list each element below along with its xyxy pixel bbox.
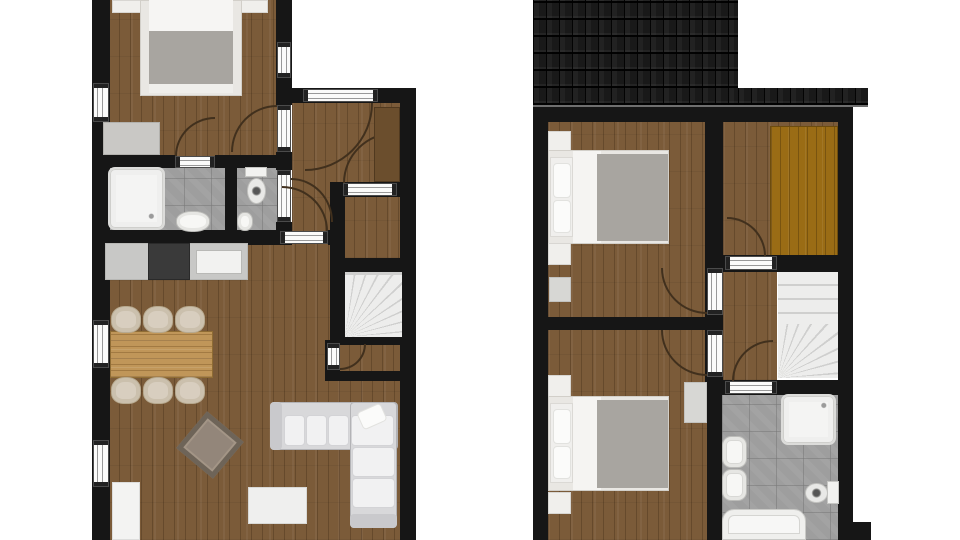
wall-upper-left (533, 107, 548, 540)
bed-pillow (553, 163, 571, 198)
window-bedroom-left (93, 83, 109, 122)
door-bedroom (277, 105, 291, 152)
kitchen-sink-basin (196, 250, 242, 274)
bed-pillow (553, 409, 571, 444)
nightstand (548, 131, 571, 152)
wall-bedroom-divider (548, 317, 707, 330)
bed-blanket (597, 154, 668, 241)
bedroom2-dresser (549, 277, 571, 302)
upper-shower-tray (781, 394, 836, 445)
kitchen-stove (148, 243, 190, 280)
sofa-cushion (352, 447, 395, 477)
sofa-armrest (270, 402, 282, 450)
door-upper-bedroom3 (707, 330, 723, 377)
wall-step-bottom-right (848, 522, 871, 540)
upper-stairs-winders (778, 324, 838, 378)
wc-sink (237, 212, 253, 231)
window-living-left (93, 440, 109, 487)
bed-blanket (149, 31, 233, 86)
tv-stand (248, 487, 307, 524)
sofa-cushion (352, 478, 395, 508)
wc-toilet-bowl (247, 178, 266, 204)
sofa-cushion (328, 415, 349, 446)
wall-upper-top (533, 107, 853, 122)
window-dining-left (93, 320, 109, 368)
hall-wardrobe (374, 107, 400, 182)
shower-tray (108, 167, 165, 230)
bed-blanket (597, 400, 668, 488)
bedroom-dresser (103, 122, 160, 155)
upper-toilet-bowl (805, 483, 828, 503)
ground-stairs (345, 272, 402, 337)
wall-upper-right (838, 107, 853, 540)
roof-eave-strip (738, 88, 868, 107)
ground-storage-floor (343, 197, 401, 258)
wall-upper-bath-left (707, 395, 722, 540)
floor-plan (0, 0, 960, 540)
door-upper-bedroom2 (707, 268, 723, 315)
nightstand (548, 492, 571, 514)
door-upper-bathroom (725, 381, 777, 394)
upper-toilet-tank (827, 481, 839, 504)
sofa-cushion (306, 415, 327, 446)
door-storage (343, 183, 397, 196)
sofa-cushion (284, 415, 305, 446)
dining-chair (111, 306, 141, 333)
door-kitchen-hall (280, 231, 328, 244)
wc-toilet-tank (245, 167, 267, 177)
door-front (303, 89, 378, 102)
bed-pillow (553, 446, 571, 479)
bathroom-sink (176, 211, 210, 232)
nightstand (548, 243, 571, 265)
wall-stairs-top (330, 258, 416, 272)
roof-main (533, 0, 738, 107)
upper-bathroom-sink (722, 469, 747, 501)
dining-chair (175, 377, 205, 404)
upper-bathroom-sink (722, 436, 747, 468)
sideboard (112, 482, 140, 540)
sofa-armrest (350, 514, 397, 528)
bed-pillow (553, 200, 571, 233)
dining-chair (143, 306, 173, 333)
door-bathroom (175, 156, 215, 168)
upper-wardrobe-floor (770, 126, 838, 256)
dining-chair (175, 306, 205, 333)
door-upper-closet (725, 256, 777, 270)
dining-chair (143, 377, 173, 404)
dining-chair (111, 377, 141, 404)
wall-right-exterior (400, 88, 416, 540)
bathtub (722, 509, 806, 540)
door-understair (327, 343, 340, 370)
window-bedroom-right (277, 42, 291, 78)
bedroom3-dresser (684, 382, 707, 423)
bed-foot-fold (149, 84, 233, 93)
nightstand (548, 375, 571, 397)
bed-sheet (149, 0, 233, 34)
dining-table (110, 331, 213, 378)
